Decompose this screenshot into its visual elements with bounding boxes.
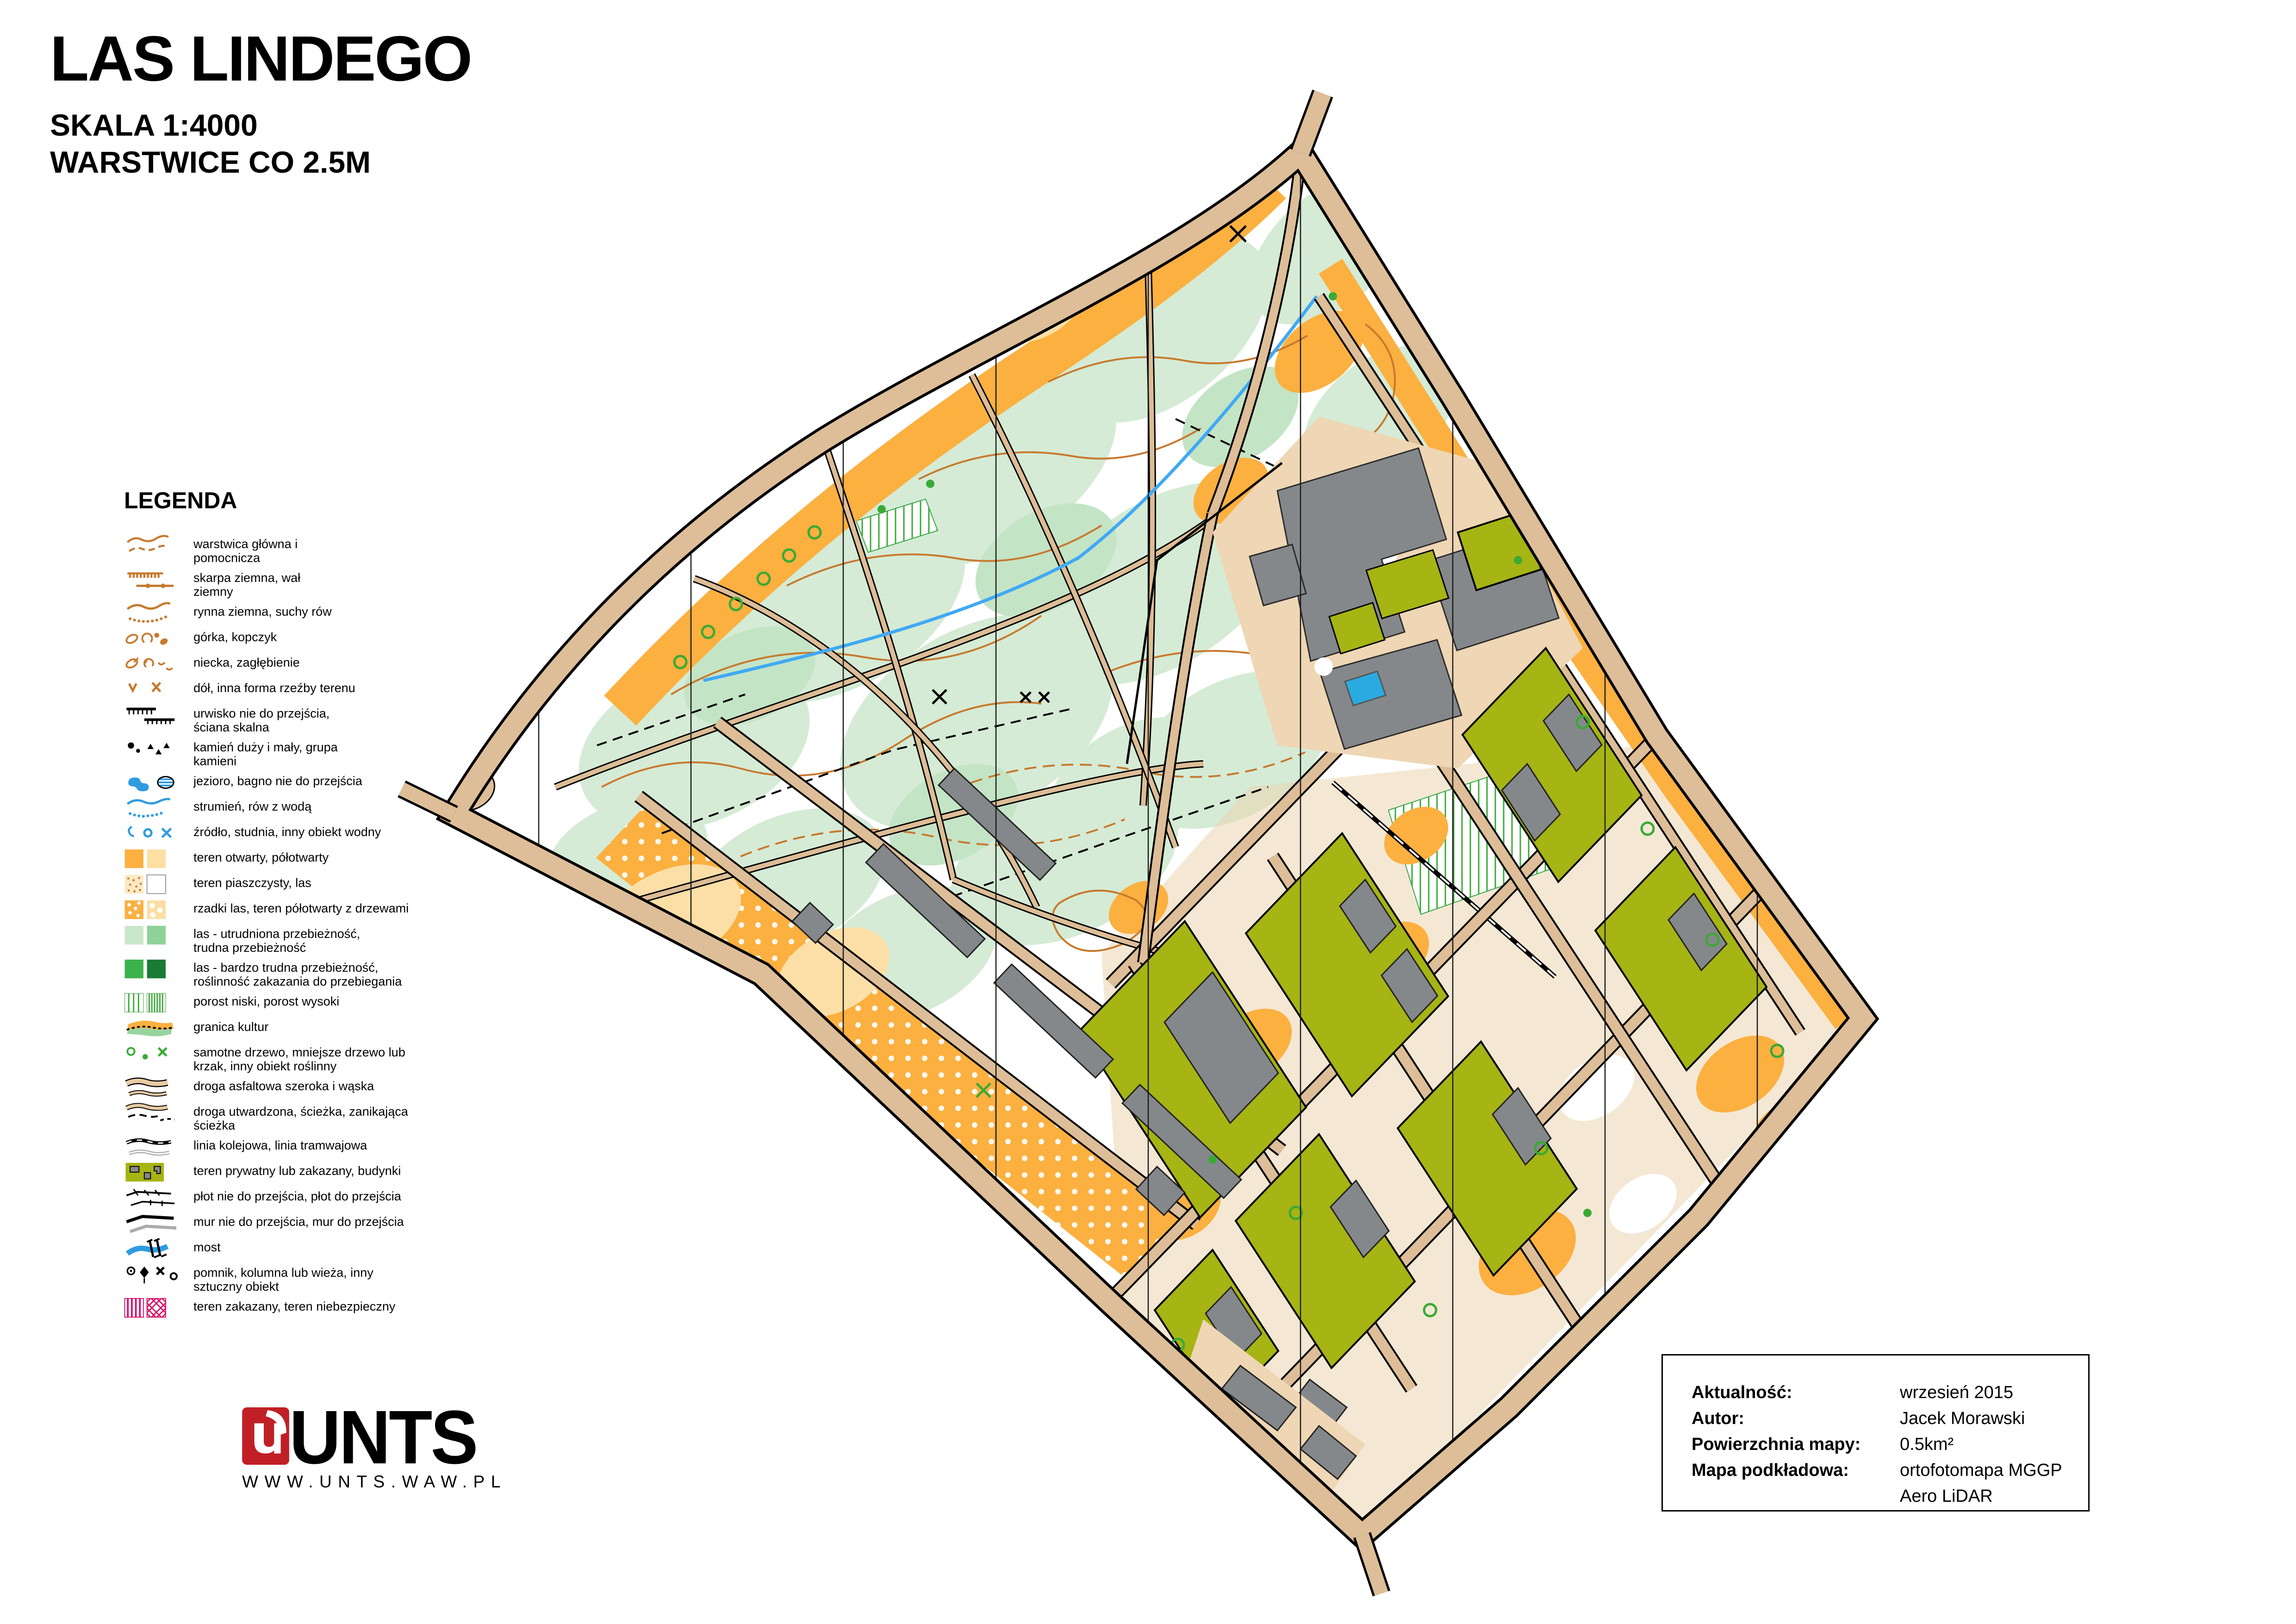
forbidden-area-icon (124, 1297, 183, 1319)
map-info-box: Aktualność:wrzesień 2015Autor:Jacek Mora… (1661, 1354, 2090, 1512)
legend-item: droga utwardzona, ścieżka, zanikająca śc… (124, 1102, 494, 1132)
legend-item: granica kultur (124, 1017, 494, 1039)
legend-item-label: górka, kopczyk (193, 627, 490, 644)
boulders-icon (124, 737, 183, 760)
club-logo: UNTS WWW.UNTS.WAW.PL (242, 1407, 507, 1492)
legend-item: płot nie do przejścia, płot do przejścia (124, 1187, 494, 1209)
legend-item: las - bardzo trudna przebieżność, roślin… (124, 958, 494, 988)
earth-bank-icon (124, 568, 183, 590)
legend-item-label: kamień duży i mały, grupa kamieni (193, 737, 490, 768)
legend-item: niecka, zagłębienie (124, 653, 494, 675)
legend-item-label: jezioro, bagno nie do przejścia (193, 771, 490, 788)
legend-item-label: teren otwarty, półotwarty (193, 848, 490, 864)
depression-icon (124, 653, 183, 675)
title-block: LAS LINDEGO SKALA 1:4000 WARSTWICE CO 2.… (50, 24, 471, 181)
contour-interval-label: WARSTWICE CO 2.5M (50, 144, 471, 181)
legend-item: źródło, studnia, inny obiekt wodny (124, 822, 494, 844)
info-rows: Aktualność:wrzesień 2015Autor:Jacek Mora… (1692, 1380, 2070, 1509)
unts-logo-icon (242, 1407, 289, 1465)
cultivation-boundary-icon (124, 1017, 183, 1039)
legend-item: linia kolejowa, linia tramwajowa (124, 1136, 494, 1158)
legend-item: górka, kopczyk (124, 627, 494, 650)
info-row: Mapa podkładowa:ortofotomapa MGGP Aero L… (1692, 1457, 2070, 1509)
tree-bush-icon (124, 1043, 183, 1065)
dirt-path-icon (124, 1102, 183, 1124)
bridge-icon (124, 1237, 183, 1260)
lake-marsh-icon (124, 771, 183, 793)
scale-label: SKALA 1:4000 (50, 106, 471, 144)
legend-item: skarpa ziemna, wał ziemny (124, 568, 494, 599)
legend-item-label: warstwica główna i pomocnicza (193, 534, 490, 565)
legend-item-label: strumień, rów z wodą (193, 797, 490, 813)
legend-item: samotne drzewo, mniejsze drzewo lub krza… (124, 1043, 494, 1073)
legend-item-label: rynna ziemna, suchy rów (193, 602, 490, 618)
pit-icon (124, 678, 183, 700)
erosion-gully-icon (124, 602, 183, 624)
monument-icon (124, 1263, 183, 1285)
legend-item: warstwica główna i pomocnicza (124, 534, 494, 565)
forest-slow-icon (124, 924, 183, 946)
info-row: Autor:Jacek Morawski (1692, 1405, 2070, 1431)
legend-item: kamień duży i mały, grupa kamieni (124, 737, 494, 768)
stream-icon (124, 797, 183, 819)
sandy-ground-icon (124, 873, 183, 895)
legend-panel: LEGENDA warstwica główna i pomocniczaska… (124, 487, 494, 1322)
legend-item: dół, inna forma rzeźby terenu (124, 678, 494, 700)
paved-road-icon (124, 1076, 183, 1099)
legend-item-label: las - bardzo trudna przebieżność, roślin… (193, 958, 490, 988)
legend-item-label: porost niski, porost wysoki (193, 992, 490, 1008)
legend-item-label: teren zakazany, teren niebezpieczny (193, 1297, 490, 1313)
legend-item-label: źródło, studnia, inny obiekt wodny (193, 822, 490, 839)
knoll-icon (124, 627, 183, 650)
legend-item: porost niski, porost wysoki (124, 992, 494, 1014)
legend-item: teren zakazany, teren niebezpieczny (124, 1297, 494, 1319)
legend-items: warstwica główna i pomocniczaskarpa ziem… (124, 534, 494, 1319)
info-row: Powierzchnia mapy:0.5km² (1692, 1431, 2070, 1457)
info-label: Mapa podkładowa: (1692, 1457, 1900, 1509)
legend-item: droga asfaltowa szeroka i wąska (124, 1076, 494, 1099)
legend-item-label: most (193, 1237, 490, 1254)
info-value: 0.5km² (1900, 1431, 2070, 1457)
legend-item-label: dół, inna forma rzeźby terenu (193, 678, 490, 695)
legend-item: teren piaszczysty, las (124, 873, 494, 895)
legend-item-label: mur nie do przejścia, mur do przejścia (193, 1212, 490, 1229)
legend-item-label: rzadki las, teren półotwarty z drzewami (193, 899, 490, 915)
private-area-icon (124, 1161, 183, 1183)
legend-item: teren prywatny lub zakazany, budynki (124, 1161, 494, 1183)
legend-item: pomnik, kolumna lub wieża, inny sztuczny… (124, 1263, 494, 1293)
legend-item-label: las - utrudniona przebieżność, trudna pr… (193, 924, 490, 955)
legend-item-label: urwisko nie do przejścia, ściana skalna (193, 704, 490, 734)
logo-brand-text: UNTS (289, 1410, 477, 1465)
legend-item: las - utrudniona przebieżność, trudna pr… (124, 924, 494, 955)
legend-item-label: droga asfaltowa szeroka i wąska (193, 1076, 490, 1093)
legend-item-label: linia kolejowa, linia tramwajowa (193, 1136, 490, 1152)
legend-item-label: droga utwardzona, ścieżka, zanikająca śc… (193, 1102, 490, 1132)
legend-item: most (124, 1237, 494, 1260)
legend-item-label: pomnik, kolumna lub wieża, inny sztuczny… (193, 1263, 490, 1293)
legend-item: teren otwarty, półotwarty (124, 848, 494, 870)
info-value: ortofotomapa MGGP Aero LiDAR (1900, 1457, 2070, 1509)
legend-item: jezioro, bagno nie do przejścia (124, 771, 494, 793)
legend-item-label: teren prywatny lub zakazany, budynki (193, 1161, 490, 1178)
legend-item: urwisko nie do przejścia, ściana skalna (124, 704, 494, 734)
water-object-icon (124, 822, 183, 844)
wall-icon (124, 1212, 183, 1234)
legend-item-label: płot nie do przejścia, płot do przejścia (193, 1187, 490, 1203)
legend-item-label: teren piaszczysty, las (193, 873, 490, 890)
fence-icon (124, 1187, 183, 1209)
info-value: Jacek Morawski (1900, 1405, 2070, 1431)
undergrowth-icon (124, 992, 183, 1014)
legend-item-label: niecka, zagłębienie (193, 653, 490, 669)
legend-item: rzadki las, teren półotwarty z drzewami (124, 899, 494, 921)
info-value: wrzesień 2015 (1900, 1380, 2070, 1405)
legend-item-label: skarpa ziemna, wał ziemny (193, 568, 490, 599)
legend-heading: LEGENDA (124, 487, 494, 514)
info-label: Autor: (1692, 1405, 1900, 1431)
page-title: LAS LINDEGO (50, 24, 471, 94)
info-row: Aktualność:wrzesień 2015 (1692, 1380, 2070, 1405)
legend-item: rynna ziemna, suchy rów (124, 602, 494, 624)
info-label: Powierzchnia mapy: (1692, 1431, 1900, 1457)
contour-lines-icon (124, 534, 183, 556)
impassable-cliff-icon (124, 704, 183, 726)
info-label: Aktualność: (1692, 1380, 1900, 1405)
legend-item-label: samotne drzewo, mniejsze drzewo lub krza… (193, 1043, 490, 1073)
legend-item-label: granica kultur (193, 1017, 490, 1034)
forest-fight-icon (124, 958, 183, 980)
scattered-trees-icon (124, 899, 183, 921)
open-land-icon (124, 848, 183, 870)
legend-item: mur nie do przejścia, mur do przejścia (124, 1212, 494, 1234)
railway-icon (124, 1136, 183, 1158)
map-sheet: { "title": { "name": "LAS LINDEGO", "sca… (0, 0, 2296, 1624)
legend-item: strumień, rów z wodą (124, 797, 494, 819)
